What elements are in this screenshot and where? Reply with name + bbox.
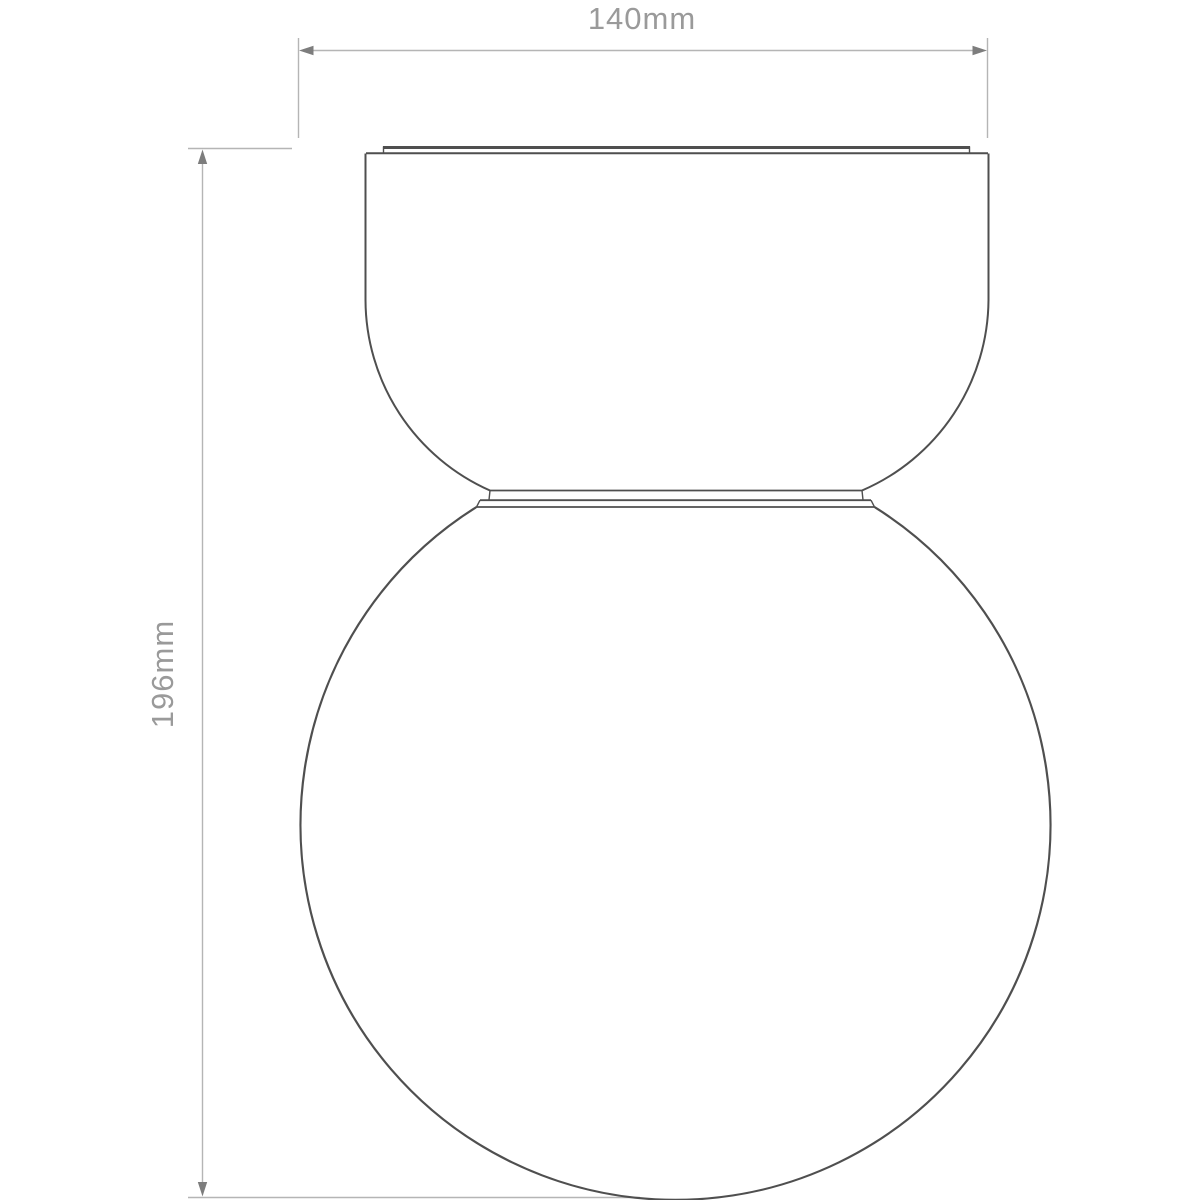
dimension-drawing: 140mm 196mm xyxy=(0,0,1200,1200)
fixture-outline xyxy=(301,147,1051,1200)
globe-outline xyxy=(301,507,1051,1200)
width-dimension-label: 140mm xyxy=(588,1,696,37)
arrow-left-icon xyxy=(299,46,314,55)
arrow-down-icon xyxy=(198,1182,207,1197)
arrow-right-icon xyxy=(973,46,988,55)
neck-ring-side-left xyxy=(477,500,481,507)
bowl-side-right xyxy=(862,154,989,491)
arrow-up-icon xyxy=(198,150,207,165)
neck-ring-side-right xyxy=(871,500,875,507)
bowl-side-left xyxy=(366,154,491,491)
height-dimension xyxy=(188,149,640,1198)
height-dimension-label: 196mm xyxy=(145,620,181,728)
neck-tick-right xyxy=(862,491,863,501)
width-dimension xyxy=(299,38,988,138)
fixture-line-art xyxy=(0,0,1200,1200)
neck-tick-left xyxy=(489,491,490,501)
